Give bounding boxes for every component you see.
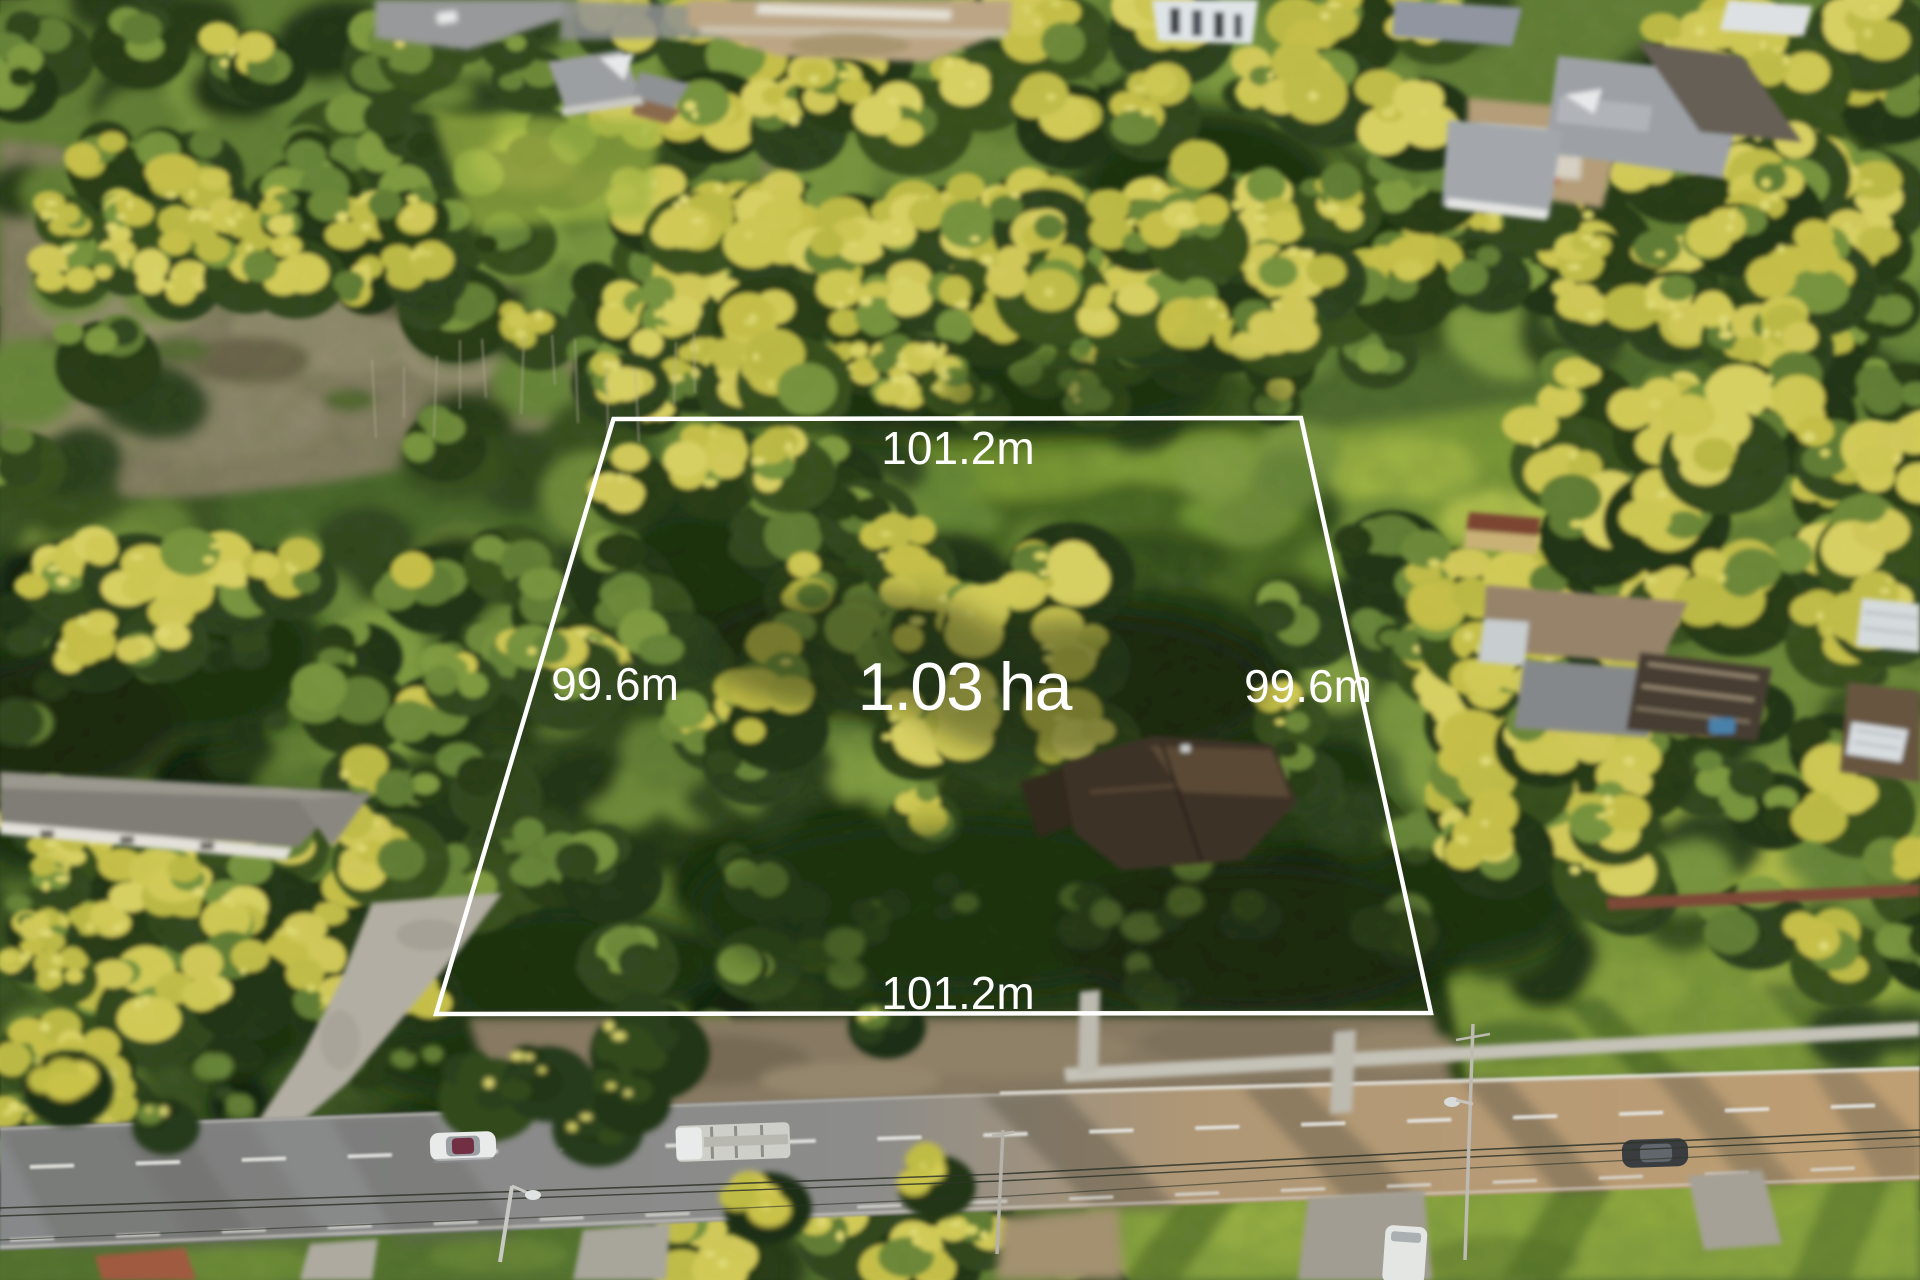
svg-text:101.2m: 101.2m <box>881 422 1034 474</box>
svg-text:101.2m: 101.2m <box>881 967 1034 1019</box>
svg-text:1.03 ha: 1.03 ha <box>858 649 1073 725</box>
svg-text:99.6m: 99.6m <box>551 658 679 710</box>
svg-text:99.6m: 99.6m <box>1244 660 1372 712</box>
